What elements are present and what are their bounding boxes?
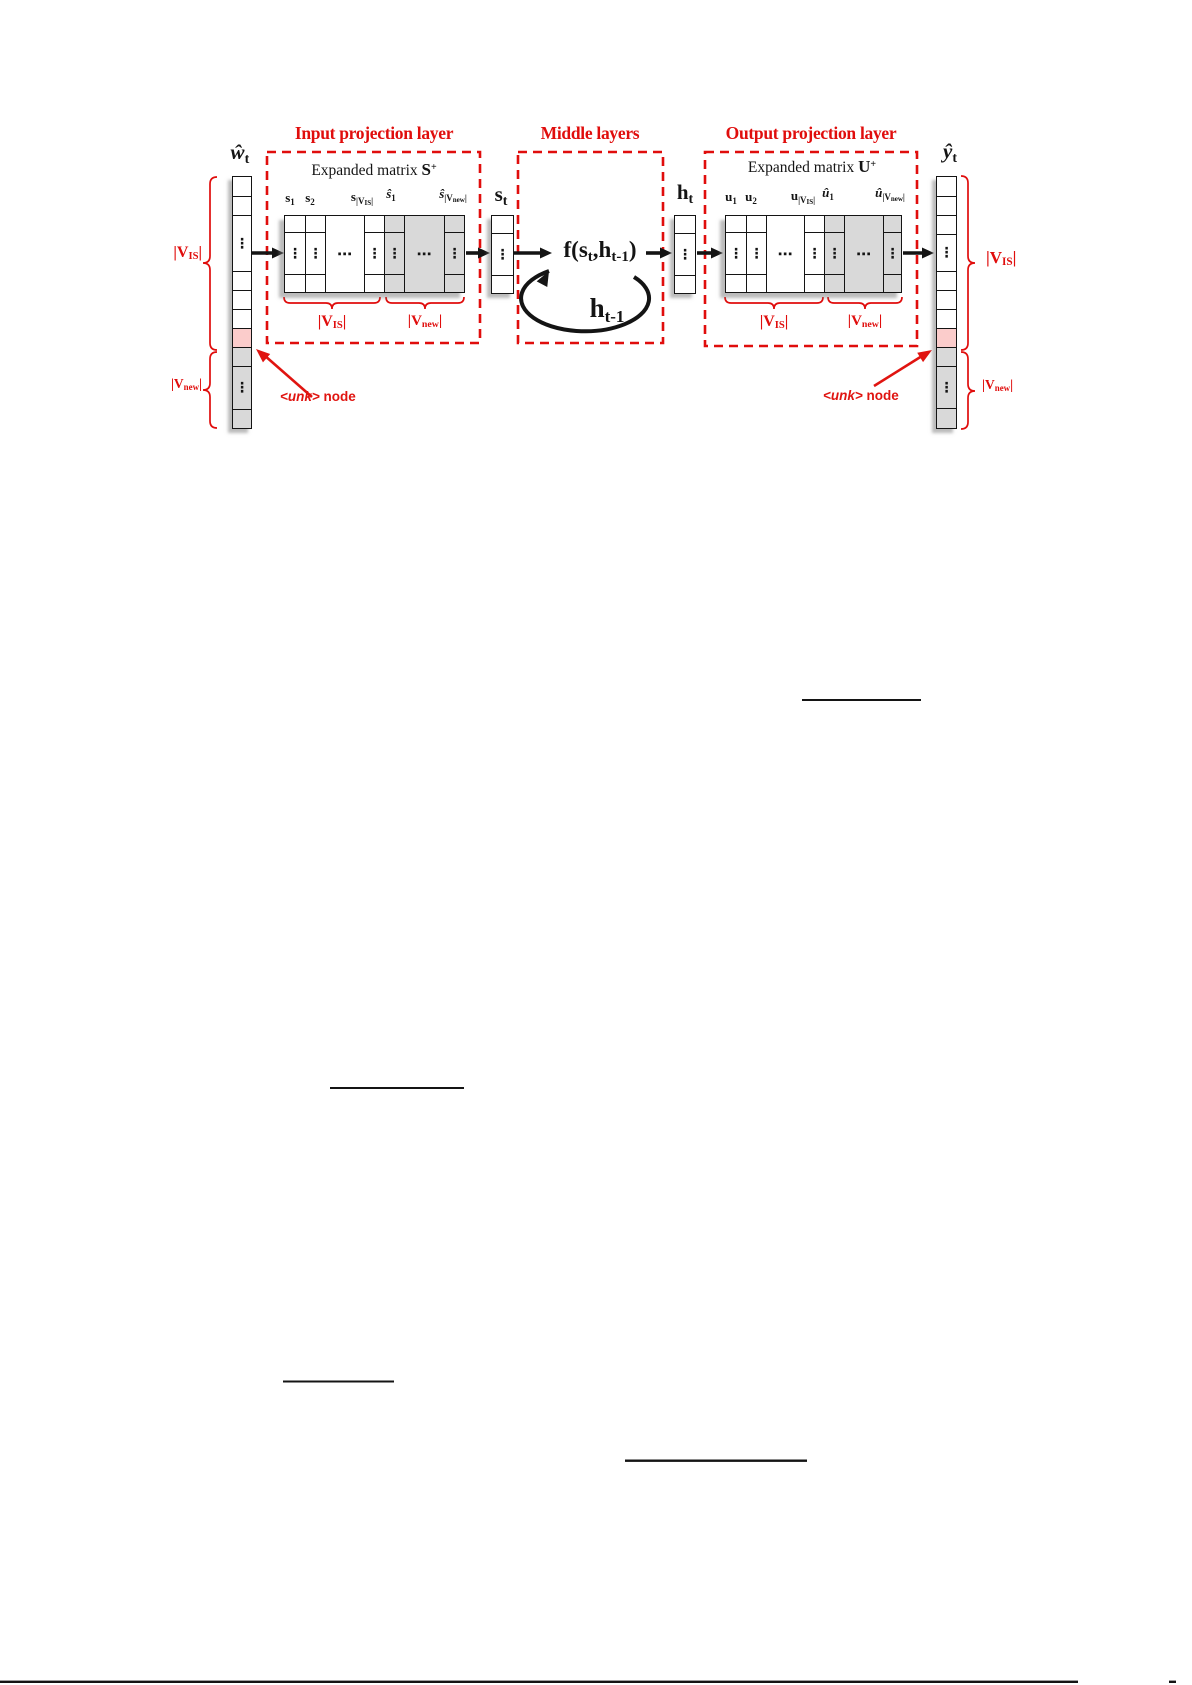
left-vis-cardinality: |VIS| — [162, 245, 202, 263]
left-vnew-brace — [203, 352, 217, 428]
hrule-4 — [625, 1460, 807, 1462]
left-vis-brace — [203, 177, 217, 350]
vector-dots-cell: ⋮ — [233, 215, 251, 271]
hrule-2 — [330, 1087, 464, 1089]
unk-node-cell — [937, 328, 956, 347]
output-vis-cardinality: |VIS| — [744, 314, 804, 332]
hrule-3 — [283, 1381, 394, 1383]
hrule-1 — [802, 699, 921, 701]
st-vector: ⋮ — [491, 215, 514, 294]
output-vnew-underbrace — [828, 297, 902, 309]
vector-dots-cell: ⋮ — [675, 233, 695, 275]
left-unk-note: <unk> node — [280, 390, 356, 404]
input-vnew-cardinality: |Vnew| — [393, 314, 457, 330]
vector-dots-cell: ⋮ — [937, 234, 956, 271]
col-label-s2: s2 — [302, 191, 318, 207]
input-word-vector: ⋮ ⋮ — [232, 176, 252, 429]
recurrent-function-label: f(st,ht-1) — [538, 238, 662, 265]
output-vis-underbrace — [725, 297, 823, 309]
input-vnew-underbrace — [386, 297, 464, 309]
col-label-s1: s1 — [282, 191, 298, 207]
col-label-u2: u2 — [743, 190, 759, 206]
footer-rule-tick — [1169, 1681, 1176, 1683]
right-vnew-cardinality: |Vnew| — [982, 378, 1038, 393]
col-label-s-hat-1: ŝ1 — [382, 187, 400, 203]
col-label-u-vis: u|VIS| — [783, 189, 823, 206]
right-unk-arrowhead — [917, 345, 935, 362]
input-vector-label: ŵt — [220, 142, 260, 167]
input-vis-underbrace — [284, 297, 380, 309]
right-unk-note: <unk> node — [823, 389, 899, 403]
vector-dots-cell: ⋮ — [233, 366, 251, 409]
expanded-matrix-s-caption: Expanded matrix S+ — [276, 161, 472, 180]
col-label-u1: u1 — [723, 190, 739, 206]
paper-page: Input projection layer Middle layers Out… — [0, 0, 1192, 1685]
right-vnew-brace — [961, 352, 975, 429]
previous-hidden-state-label: ht-1 — [570, 295, 644, 325]
input-projection-title: Input projection layer — [272, 124, 476, 142]
unk-node-cell — [233, 328, 251, 347]
ht-vector: ⋮ — [674, 215, 696, 294]
middle-layers-title: Middle layers — [488, 124, 692, 142]
right-unk-arrow — [874, 356, 922, 386]
expanded-matrix-u-caption: Expanded matrix U+ — [714, 158, 910, 177]
col-label-u-hat-vnew: û|Vnew| — [864, 186, 916, 203]
recurrent-loop-arrowhead — [537, 268, 555, 287]
col-label-s-vis: s|VIS| — [342, 190, 382, 207]
left-unk-arrowhead — [252, 345, 270, 362]
col-label-s-hat-vnew: ŝ|Vnew| — [430, 187, 476, 204]
left-vnew-cardinality: |Vnew| — [156, 377, 202, 392]
st-vector-label: st — [484, 184, 518, 209]
output-vnew-cardinality: |Vnew| — [833, 314, 897, 330]
output-projection-matrix: ⋮ ⋮ ⋯ ⋮ ⋮ ⋯ ⋮ — [725, 215, 902, 293]
output-word-vector: ⋮ ⋮ — [936, 176, 957, 429]
input-projection-matrix: ⋮ ⋮ ⋯ ⋮ ⋮ ⋯ ⋮ — [284, 215, 465, 293]
col-label-u-hat-1: û1 — [818, 186, 838, 202]
right-vis-brace — [961, 176, 975, 350]
ht-vector-label: ht — [668, 182, 702, 207]
input-vis-cardinality: |VIS| — [302, 314, 362, 332]
vector-dots-cell: ⋮ — [937, 366, 956, 408]
output-projection-title: Output projection layer — [709, 124, 913, 142]
footer-rule — [0, 1681, 1078, 1683]
right-vis-cardinality: |VIS| — [986, 249, 1036, 268]
vector-dots-cell: ⋮ — [492, 233, 513, 275]
output-vector-label: ŷt — [930, 141, 970, 166]
